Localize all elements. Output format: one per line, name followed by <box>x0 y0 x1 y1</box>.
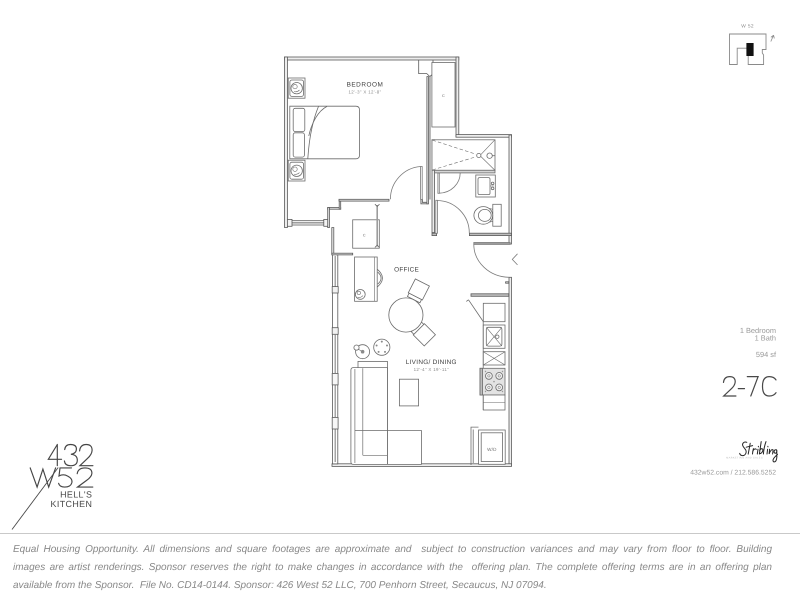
svg-text:W/D: W/D <box>487 447 497 452</box>
svg-text:432w52.com / 212.586.5252: 432w52.com / 212.586.5252 <box>690 469 776 476</box>
svg-text:MARKETING AND SALES: MARKETING AND SALES <box>726 456 763 459</box>
svg-text:12'-4" X 19'-11": 12'-4" X 19'-11" <box>414 367 450 372</box>
svg-text:BEDROOM: BEDROOM <box>347 82 384 89</box>
svg-text:OFFICE: OFFICE <box>394 267 419 274</box>
svg-text:KITCHEN: KITCHEN <box>51 499 93 509</box>
svg-text:594 sf: 594 sf <box>756 350 777 359</box>
svg-text:1 Bath: 1 Bath <box>755 333 776 342</box>
svg-text:HELL'S: HELL'S <box>60 490 92 500</box>
svg-text:12'-3" X 12'-8": 12'-3" X 12'-8" <box>349 89 382 94</box>
svg-text:W 52: W 52 <box>741 24 754 30</box>
svg-text:LIVING/ DINING: LIVING/ DINING <box>406 359 457 366</box>
